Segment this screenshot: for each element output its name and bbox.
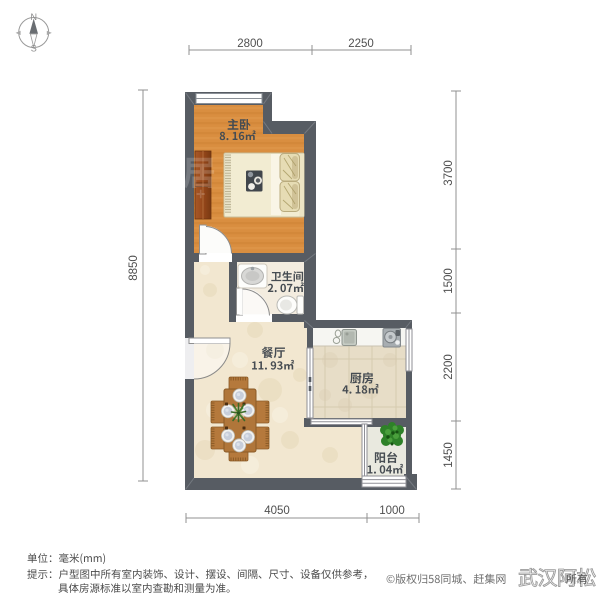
svg-text:3700: 3700 — [443, 160, 455, 186]
svg-text:1000: 1000 — [379, 505, 405, 517]
svg-text:4050: 4050 — [264, 505, 290, 517]
svg-text:1500: 1500 — [443, 268, 455, 294]
svg-text:N: N — [30, 12, 37, 22]
svg-text:2800: 2800 — [237, 38, 263, 50]
svg-text:S: S — [31, 44, 37, 54]
svg-text:2250: 2250 — [348, 38, 374, 50]
svg-text:2200: 2200 — [443, 354, 455, 380]
svg-text:8850: 8850 — [128, 255, 140, 281]
svg-text:1450: 1450 — [443, 442, 455, 468]
